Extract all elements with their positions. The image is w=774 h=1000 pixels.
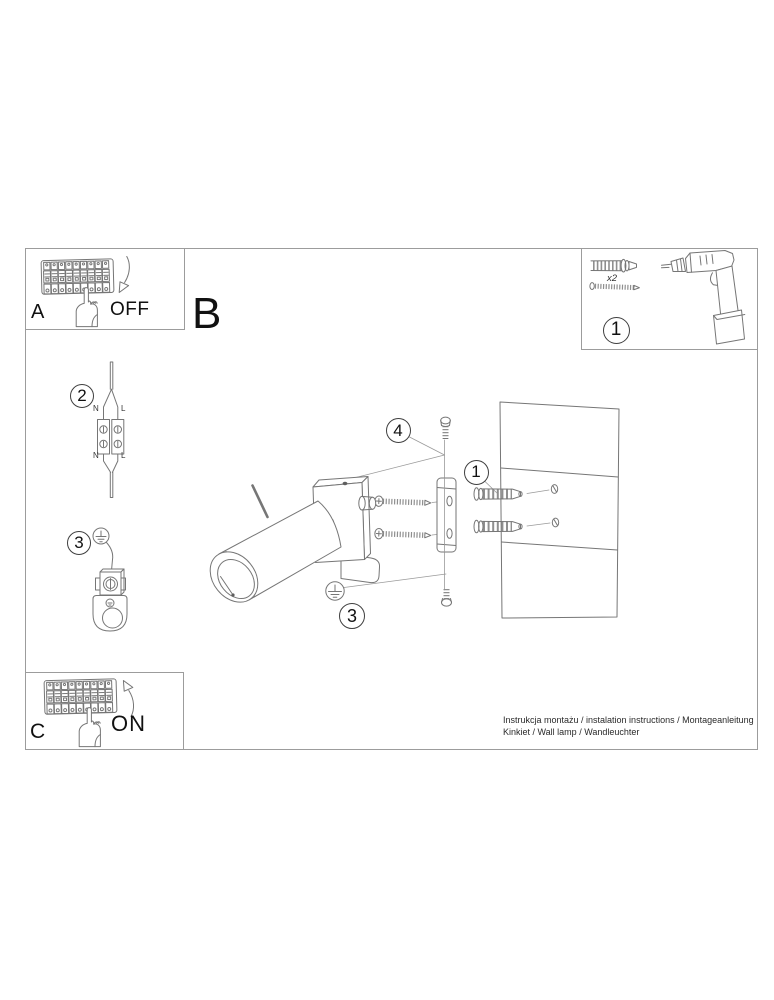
switch-on-label: ON	[111, 711, 146, 737]
panel-c-label: C	[30, 720, 45, 744]
assembly-callout-top-screw: 4	[386, 418, 411, 443]
assembly-callout-anchors: 1	[464, 460, 489, 485]
panel-a-box	[25, 248, 185, 330]
footer-line2: Kinkiet / Wall lamp / Wandleuchter	[503, 727, 639, 738]
instruction-sheet: A OFF B C ON x2 N L N L 1 2 3 4 1 3 Inst…	[0, 0, 774, 1000]
wire-label-l-bottom: L	[121, 451, 125, 460]
step2-callout: 2	[70, 384, 94, 408]
wire-label-n-bottom: N	[93, 451, 99, 460]
panel-c-box	[25, 672, 184, 750]
switch-off-label: OFF	[110, 299, 150, 321]
wire-label-n-top: N	[93, 404, 99, 413]
step3-callout: 3	[67, 531, 91, 555]
assembly-callout-ground-screw: 3	[339, 603, 365, 629]
section-b-label: B	[192, 289, 221, 339]
parts-box-callout: 1	[603, 317, 630, 344]
anchor-quantity-label: x2	[607, 273, 617, 284]
panel-a-label: A	[31, 301, 44, 324]
footer-line1: Instrukcja montażu / instalation instruc…	[503, 715, 754, 726]
wire-label-l-top: L	[121, 404, 125, 413]
